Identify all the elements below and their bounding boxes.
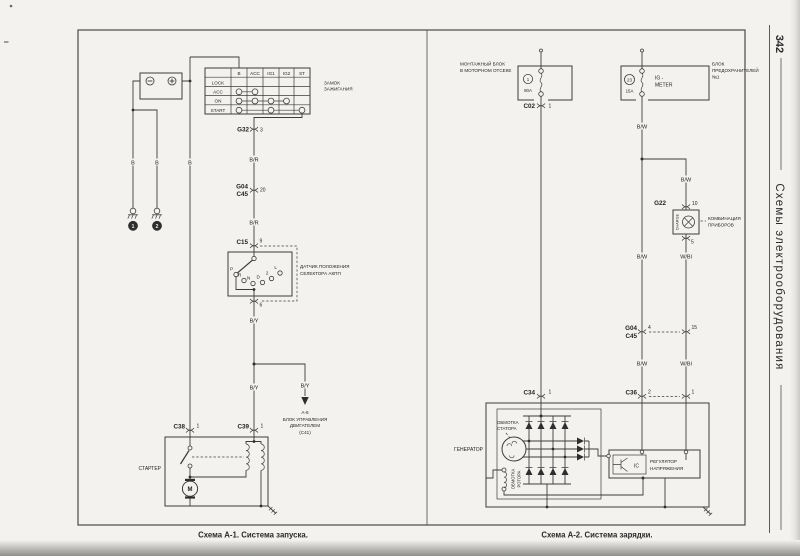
ecu-ref: А-6 [301,410,309,415]
selector-position: 2 [266,271,269,276]
wire-label: B/W [637,362,648,368]
motor-letter: M [188,487,193,493]
selector-position: N [247,276,250,281]
wire-label: B/W [681,178,692,184]
stator-label: СТАТОРА [497,426,517,431]
ign-row-label: LOCK [212,80,225,85]
charge-lamp-icon [683,216,695,228]
instrument-cluster-label: ПРИБОРОВ [708,223,734,228]
rotor-label: РОТОРА [517,470,522,487]
wiring-diagram-canvas: B B B 1 2 B ACC IG1 IG2 ST [0,0,800,556]
ecu-connector-ref: (С41) [299,430,311,435]
stator-winding [502,437,526,461]
page-edge-shadow-right [788,0,800,556]
wire-label: B [188,161,192,167]
connector-name: C39 [237,424,249,431]
engine-bay-block-label: МОНТАЖНЫЙ БЛОК [460,60,505,67]
ign-col-header: ACC [250,71,260,76]
pin-number: 3 [260,128,263,134]
scan-speck [4,41,9,43]
charge-lamp-label: CHARGE [675,213,679,230]
connector-name: G04 [625,325,637,332]
ign-col-header: B [237,71,240,76]
scanned-manual-page: B B B 1 2 B ACC IG1 IG2 ST [0,0,800,556]
connector-name: G04 [236,184,248,191]
ground-number: 1 [132,224,135,230]
stator-label: ОБМОТКА [497,420,519,425]
connector-name: G32 [237,127,249,134]
regulator-label: НАПРЯЖЕНИЯ [650,466,683,471]
fuse-block-label: №1 [712,75,720,80]
pin-number: 5 [691,240,694,246]
engine-bay-block-label: В МОТОРНОМ ОТСЕКЕ [460,68,511,73]
fuse-number: 23 [627,77,632,82]
ign-row-label: ACC [213,90,223,95]
wire-label: B/W [637,125,648,131]
pin-number: 2 [648,390,651,396]
ignition-lock-label: ЗАЖИГАНИЯ [324,87,353,92]
regulator-label: РЕГУЛЯТОР [650,459,677,464]
rotor-label: ОБМОТКА [511,469,516,490]
wire-label: B [131,161,135,167]
pin-number: 10 [692,201,698,207]
pin-number: 1 [197,424,200,430]
page-edge-shadow-bottom [0,540,800,556]
connector-name: C15 [236,239,248,246]
ign-row-label: START [211,108,226,113]
wire-label: W/Bl [680,362,692,368]
selector-sensor-label: СЕЛЕКТОРА АКПП [300,271,341,276]
selector-sensor-label: ДАТЧИК ПОЛОЖЕНИЯ [300,264,350,269]
wire-label: B/W [637,255,648,261]
ign-col-header: IG1 [267,71,275,76]
pin-number: 4 [648,325,651,331]
fuse-rating: 80A [524,88,532,93]
selector-position: L [274,265,277,270]
diode-trio [577,438,584,461]
connector-name: C45 [625,333,637,340]
wire-label: B/Y [301,384,310,390]
pin-number: 1 [549,104,552,110]
connector-name: C02 [523,103,535,110]
ignition-lock-label: ЗАМОК [324,81,340,86]
fuse-block-label: БЛОК [712,62,725,67]
ecu-label: БЛОК УПРАВЛЕНИЯ [283,417,328,422]
paper-background [0,0,800,556]
page-number: 342 [773,35,785,53]
ign-col-header: ST [299,71,305,76]
fuse-block-label: ПРЕДОХРАНИТЕЛЕЙ [712,66,759,73]
connector-name: C34 [523,390,535,397]
generator-label: ГЕНЕРАТОР [454,447,484,453]
instrument-cluster-label: КОМБИНАЦИЯ [708,216,741,221]
wire-label: B/Y [250,319,259,325]
connector-name: C45 [236,191,248,198]
wire-label: B [155,161,159,167]
ecu-label: ДВИГАТЕЛЕМ [290,423,320,428]
pin-number: 1 [261,424,264,430]
pin-number: 6 [260,303,263,309]
fuse-circuit-label: IG - [655,76,664,82]
ground-number: 2 [156,224,159,230]
pin-number: 1 [692,390,695,396]
ign-col-header: IG2 [283,71,291,76]
connector-name: C36 [625,390,637,397]
ign-row-label: ON [215,99,222,104]
caption-a1: Схема А-1. Система запуска. [198,531,308,540]
ic-label: IC [634,464,639,470]
pin-number: 1 [549,390,552,396]
pin-number: 15 [692,325,698,331]
scan-speck [10,5,13,8]
wire-label: B/Y [250,386,259,392]
pin-number: 20 [260,188,266,194]
fuse-rating: 15A [626,88,634,93]
connector-name: G22 [654,200,666,207]
connector-name: C38 [173,424,185,431]
wire-label: B/R [249,221,258,227]
chapter-side-title: Схемы электрооборудования [773,183,785,370]
wire-label: W/Bl [680,255,692,261]
pin-number: 9 [260,239,263,245]
starter-label: СТАРТЕР [138,466,161,472]
fuse-circuit-label: METER [655,83,673,89]
caption-a2: Схема А-2. Система зарядки. [541,531,652,540]
selector-position: P [230,267,233,272]
wire-label: B/R [249,158,258,164]
